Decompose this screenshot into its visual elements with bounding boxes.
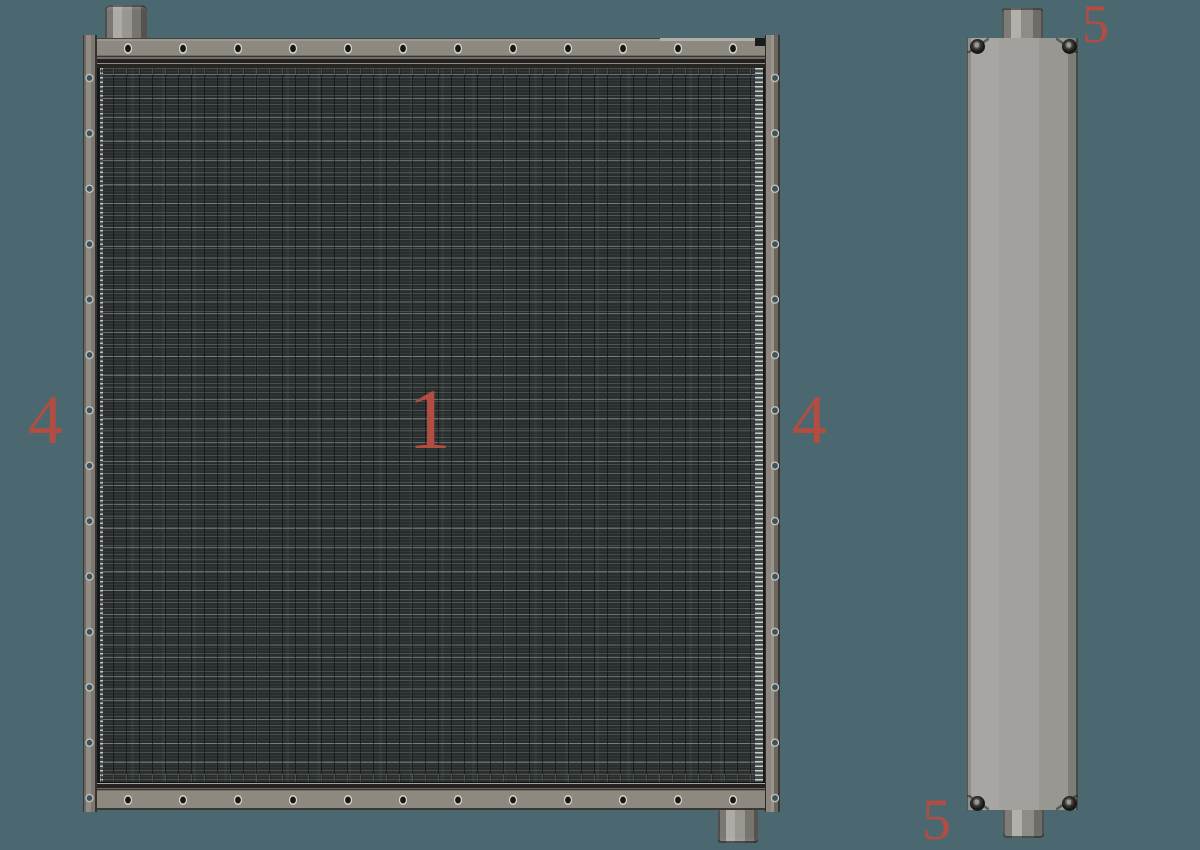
tank-screw-top-left (970, 39, 985, 54)
diagram-canvas: 1 4 4 5 5 (0, 0, 1200, 850)
callout-label-right-channel: 4 (792, 386, 827, 456)
core-fin-edge-right (755, 68, 763, 782)
callout-label-tank-bottom: 5 (922, 791, 951, 849)
callout-label-core: 1 (408, 376, 451, 462)
frame-corner-block (755, 38, 765, 46)
core-fin-ticks-top (100, 68, 763, 75)
tank-screw-bottom-left (970, 796, 985, 811)
core-fin-edge-left (100, 68, 103, 782)
callout-label-left-channel: 4 (28, 386, 63, 456)
outlet-fitting (718, 806, 758, 843)
collector-tank-side-view (967, 38, 1078, 810)
bottom-header-plate (97, 782, 765, 810)
left-side-channel (83, 35, 97, 812)
tank-screw-top-right (1062, 39, 1077, 54)
tank-port-bottom (1003, 808, 1044, 838)
top-header-plate (97, 38, 765, 68)
right-side-channel (765, 35, 780, 812)
tank-port-top (1002, 8, 1043, 40)
tank-screw-bottom-right (1062, 796, 1077, 811)
core-fin-ticks-bottom (100, 774, 763, 782)
inlet-fitting (105, 5, 147, 42)
top-rail-highlight (660, 38, 757, 41)
callout-label-tank-top: 5 (1082, 0, 1109, 51)
